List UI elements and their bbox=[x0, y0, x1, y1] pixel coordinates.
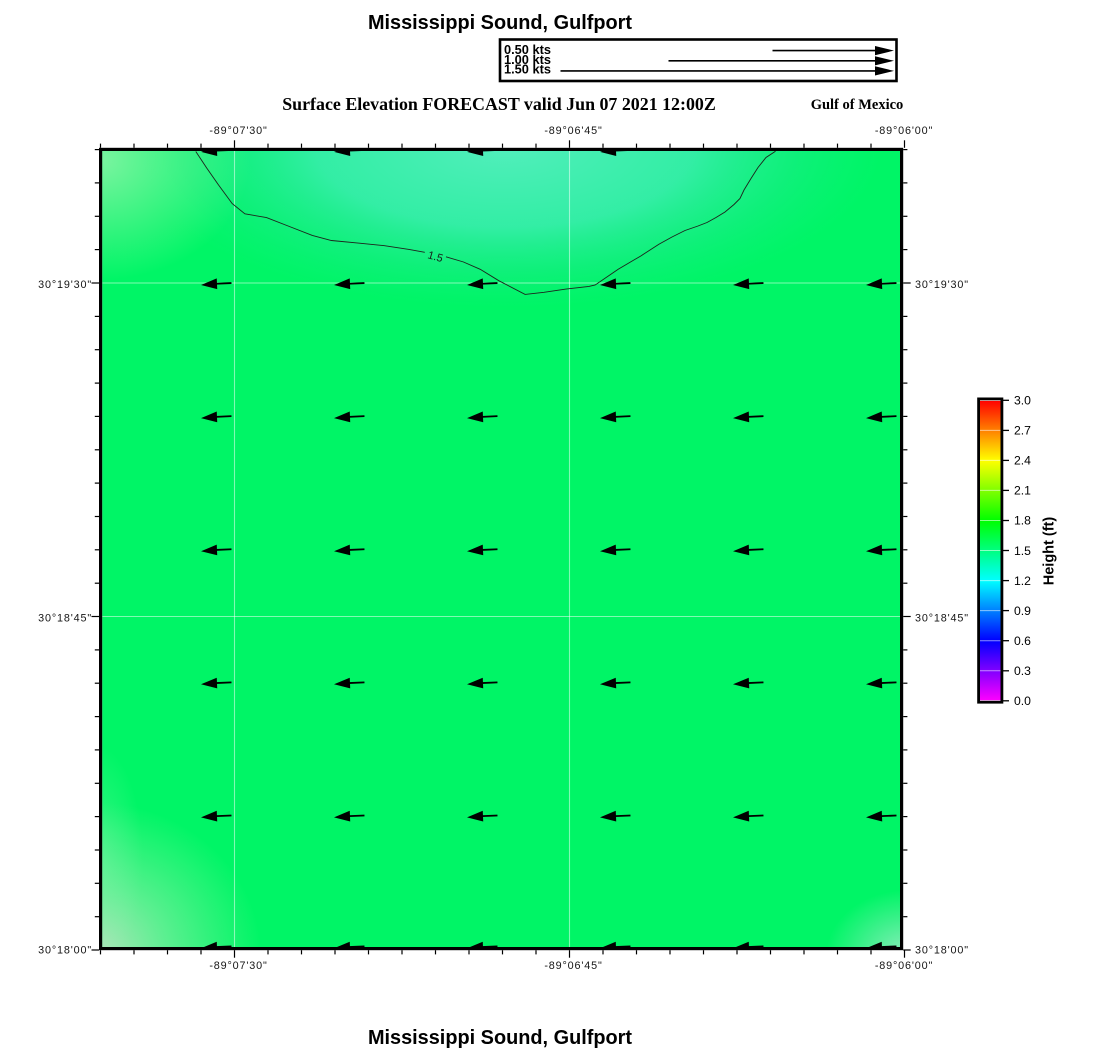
svg-text:0.9: 0.9 bbox=[1014, 604, 1031, 618]
svg-text:1.8: 1.8 bbox=[1014, 514, 1031, 528]
svg-text:30°18'45": 30°18'45" bbox=[915, 613, 969, 625]
svg-text:Mississippi Sound, Gulfport: Mississippi Sound, Gulfport bbox=[368, 1027, 632, 1049]
svg-text:Gulf of Mexico: Gulf of Mexico bbox=[811, 97, 904, 113]
svg-text:Height (ft): Height (ft) bbox=[1042, 517, 1058, 586]
svg-text:1.5: 1.5 bbox=[1014, 544, 1031, 558]
svg-text:-89°06'45": -89°06'45" bbox=[544, 125, 602, 137]
svg-text:-89°06'45": -89°06'45" bbox=[544, 960, 602, 972]
svg-text:-89°07'30": -89°07'30" bbox=[209, 960, 267, 972]
svg-text:30°19'30": 30°19'30" bbox=[38, 279, 92, 291]
svg-text:2.1: 2.1 bbox=[1014, 484, 1031, 498]
svg-text:1.2: 1.2 bbox=[1014, 574, 1031, 588]
svg-text:0.3: 0.3 bbox=[1014, 664, 1031, 678]
svg-text:30°18'00": 30°18'00" bbox=[38, 944, 92, 956]
svg-text:0.6: 0.6 bbox=[1014, 634, 1031, 648]
svg-text:-89°06'00": -89°06'00" bbox=[875, 125, 933, 137]
svg-text:2.7: 2.7 bbox=[1014, 424, 1031, 438]
svg-text:1.50 kts: 1.50 kts bbox=[504, 62, 551, 77]
svg-text:30°19'30": 30°19'30" bbox=[915, 279, 969, 291]
svg-text:Surface Elevation FORECAST val: Surface Elevation FORECAST valid Jun 07 … bbox=[282, 94, 716, 114]
svg-text:3.0: 3.0 bbox=[1014, 394, 1031, 408]
svg-text:30°18'45": 30°18'45" bbox=[38, 613, 92, 625]
svg-text:Mississippi Sound, Gulfport: Mississippi Sound, Gulfport bbox=[368, 12, 632, 34]
svg-text:-89°07'30": -89°07'30" bbox=[209, 125, 267, 137]
svg-text:-89°06'00": -89°06'00" bbox=[875, 960, 933, 972]
svg-text:30°18'00": 30°18'00" bbox=[915, 944, 969, 956]
svg-text:2.4: 2.4 bbox=[1014, 454, 1031, 468]
svg-text:0.0: 0.0 bbox=[1014, 694, 1031, 708]
